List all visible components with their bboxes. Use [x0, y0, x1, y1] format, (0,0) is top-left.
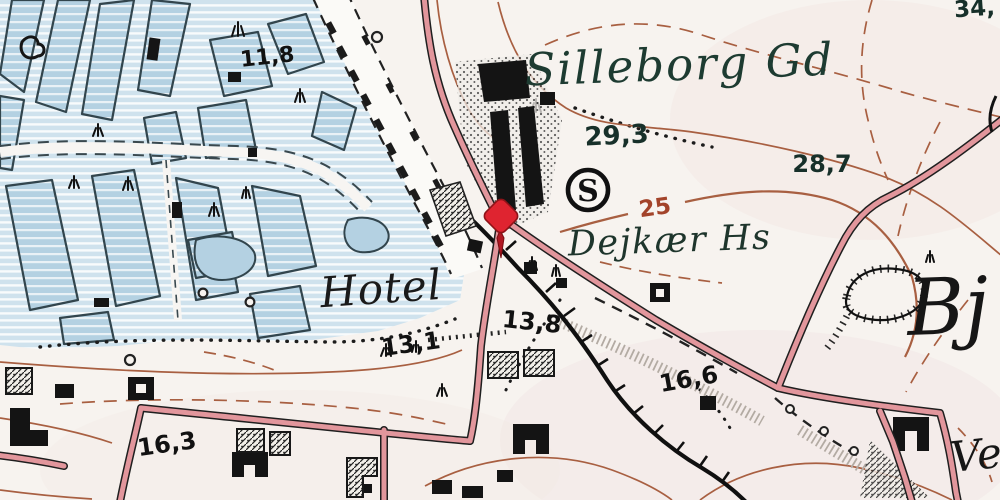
label-ve-clipped: Ve [948, 428, 1000, 482]
station-symbol-letter: S [577, 174, 599, 209]
label-silleborg: Silleborg Gd [524, 33, 836, 97]
label-contour-25: 25 [637, 193, 672, 223]
label-elev-29-3: 29,3 [584, 119, 650, 152]
label-elev-28-7: 28,7 [792, 150, 851, 178]
map-canvas[interactable]: S Silleborg Gd Dejkær Hs Hotel Bj Ve 29,… [0, 0, 1000, 500]
map-image: S Silleborg Gd Dejkær Hs Hotel Bj Ve 29,… [0, 0, 1000, 500]
station-circle-icon: S [568, 170, 608, 210]
label-hotel: Hotel [317, 260, 443, 317]
label-elev-34-clipped: 34, [953, 0, 995, 23]
label-dejkaer: Dejkær Hs [566, 217, 772, 264]
label-bj-clipped: Bj [904, 261, 991, 354]
